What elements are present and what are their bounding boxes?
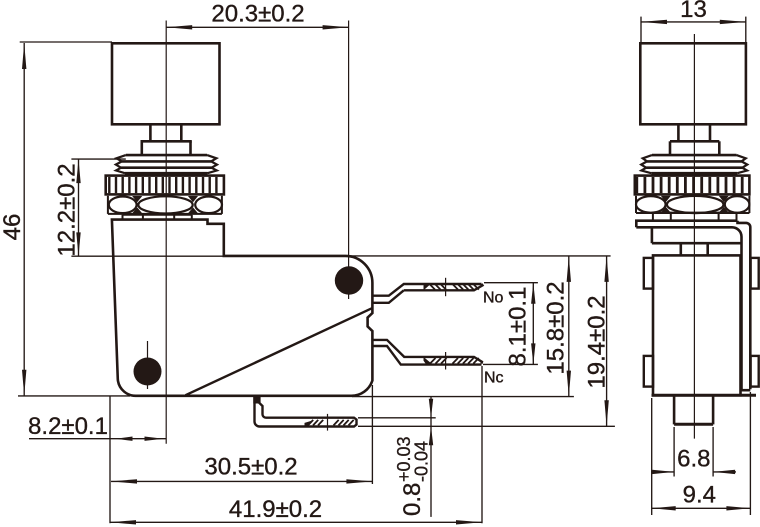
svg-text:8.1±0.1: 8.1±0.1 [505, 287, 532, 367]
svg-text:9.4: 9.4 [683, 482, 716, 509]
svg-text:6.8: 6.8 [677, 445, 710, 472]
svg-text:No: No [483, 290, 504, 307]
svg-text:13: 13 [680, 0, 707, 23]
svg-text:41.9±0.2: 41.9±0.2 [229, 496, 322, 523]
svg-text:0.8: 0.8 [399, 483, 426, 516]
svg-text:8.2±0.1: 8.2±0.1 [28, 413, 108, 440]
svg-text:46: 46 [0, 214, 26, 241]
svg-text:-0.04: -0.04 [412, 441, 432, 482]
svg-text:12.2±0.2: 12.2±0.2 [53, 163, 80, 256]
svg-text:Nc: Nc [484, 370, 504, 387]
svg-text:30.5±0.2: 30.5±0.2 [204, 454, 297, 481]
svg-text:20.3±0.2: 20.3±0.2 [211, 1, 304, 28]
svg-text:15.8±0.2: 15.8±0.2 [543, 281, 570, 374]
svg-text:19.4±0.2: 19.4±0.2 [583, 295, 610, 388]
